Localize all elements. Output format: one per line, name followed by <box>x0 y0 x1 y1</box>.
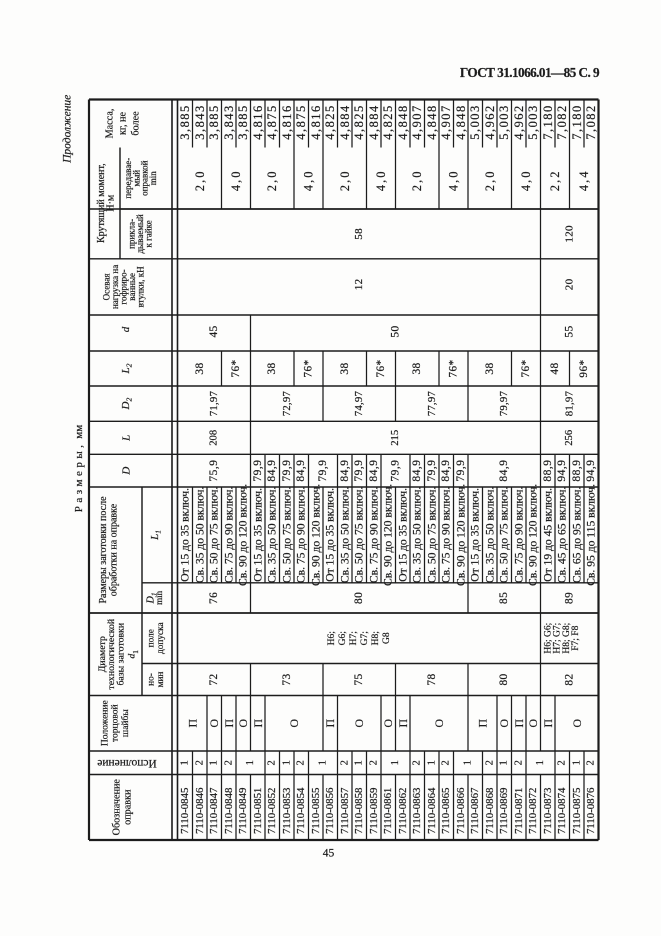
svg-text:Св. 75 до 90 включ.: Св. 75 до 90 включ. <box>440 487 453 584</box>
svg-text:О: О <box>381 718 395 727</box>
svg-text:Св. 35 до 50 включ.: Св. 35 до 50 включ. <box>483 487 496 584</box>
svg-text:5,003: 5,003 <box>497 104 511 139</box>
svg-text:120: 120 <box>564 225 576 243</box>
svg-text:min: min <box>154 590 164 605</box>
svg-text:Св. 75 до 90 включ.: Св. 75 до 90 включ. <box>295 487 308 584</box>
svg-text:Н8;: Н8; <box>371 631 381 645</box>
svg-text:шайбы: шайбы <box>120 709 131 737</box>
svg-text:50: 50 <box>390 325 402 337</box>
svg-text:1: 1 <box>390 760 401 765</box>
svg-text:поле: поле <box>147 629 157 647</box>
svg-text:80: 80 <box>353 592 365 604</box>
svg-text:7110-0867: 7110-0867 <box>469 787 481 834</box>
svg-text:D: D <box>121 467 133 476</box>
svg-text:84,9: 84,9 <box>295 460 307 482</box>
svg-text:1: 1 <box>463 760 474 765</box>
svg-text:89: 89 <box>564 592 576 604</box>
svg-text:1: 1 <box>535 760 546 765</box>
svg-text:78: 78 <box>426 673 438 685</box>
svg-text:Св. 50 до 75 включ.: Св. 50 до 75 включ. <box>498 487 511 584</box>
svg-text:1: 1 <box>499 760 510 765</box>
svg-text:7110-0863: 7110-0863 <box>411 788 423 834</box>
svg-text:7110-0862: 7110-0862 <box>397 788 409 834</box>
svg-text:4,825: 4,825 <box>381 104 395 139</box>
svg-text:Св. 90 до 120 включ.: Св. 90 до 120 включ. <box>527 484 540 586</box>
svg-text:7110-0873: 7110-0873 <box>542 788 554 834</box>
svg-text:Св. 75 до 90 включ.: Св. 75 до 90 включ. <box>222 487 235 584</box>
svg-text:74,97: 74,97 <box>353 391 365 417</box>
svg-text:Положение: Положение <box>101 700 111 746</box>
svg-text:От 15 до 35 включ.: От 15 до 35 включ. <box>179 488 192 582</box>
svg-text:7110-0856: 7110-0856 <box>324 787 336 834</box>
svg-text:2: 2 <box>339 760 350 765</box>
svg-text:4,0: 4,0 <box>447 169 461 191</box>
svg-text:П: П <box>251 718 265 727</box>
svg-text:G8: G8 <box>382 632 392 644</box>
svg-text:О: О <box>526 718 540 727</box>
svg-text:4,0: 4,0 <box>519 169 533 191</box>
svg-text:7110-0851: 7110-0851 <box>252 788 264 834</box>
svg-text:2: 2 <box>223 760 234 765</box>
svg-text:1: 1 <box>209 760 220 765</box>
svg-text:4,848: 4,848 <box>454 104 468 139</box>
svg-text:96*: 96* <box>578 359 590 377</box>
svg-text:80: 80 <box>498 673 510 685</box>
svg-text:7,082: 7,082 <box>555 104 569 139</box>
svg-text:4,884: 4,884 <box>338 104 352 139</box>
svg-text:4,825: 4,825 <box>323 104 337 139</box>
svg-text:1: 1 <box>281 760 292 765</box>
svg-text:2: 2 <box>513 760 524 765</box>
svg-text:7110-0854: 7110-0854 <box>295 787 307 834</box>
svg-text:Св. 90 до 120 включ.: Св. 90 до 120 включ. <box>237 484 250 586</box>
svg-text:76*: 76* <box>448 359 460 377</box>
svg-text:мин: мин <box>156 672 166 688</box>
svg-text:Размеры заготовки после: Размеры заготовки после <box>98 496 109 604</box>
svg-text:5,003: 5,003 <box>526 104 540 139</box>
svg-text:2,2: 2,2 <box>548 169 562 191</box>
svg-text:7,180: 7,180 <box>570 104 584 139</box>
svg-text:7110-0859: 7110-0859 <box>368 788 380 834</box>
svg-text:7110-0874: 7110-0874 <box>556 787 568 834</box>
svg-text:О: О <box>207 718 221 727</box>
svg-text:7110-0871: 7110-0871 <box>513 788 525 834</box>
svg-text:1: 1 <box>571 760 582 765</box>
svg-text:45: 45 <box>208 325 220 337</box>
svg-text:Св. 75 до 90 включ.: Св. 75 до 90 включ. <box>367 487 380 584</box>
svg-text:П: П <box>222 718 236 727</box>
svg-text:L: L <box>121 435 133 442</box>
svg-text:Св. 75 до 90 включ.: Св. 75 до 90 включ. <box>512 487 525 584</box>
svg-text:Св. 35 до 50 включ.: Св. 35 до 50 включ. <box>338 487 351 584</box>
svg-text:76*: 76* <box>375 359 387 377</box>
svg-text:38: 38 <box>411 362 423 374</box>
svg-text:От 19 до 45 включ.: От 19 до 45 включ. <box>541 488 554 582</box>
svg-text:Исполнение: Исполнение <box>97 757 157 769</box>
svg-text:7110-0855: 7110-0855 <box>310 788 322 834</box>
svg-text:2: 2 <box>557 760 568 765</box>
svg-text:П: П <box>512 718 526 727</box>
svg-text:7110-0858: 7110-0858 <box>353 788 365 834</box>
svg-text:7110-0848: 7110-0848 <box>223 788 235 834</box>
svg-text:1: 1 <box>180 760 191 765</box>
svg-text:79,97: 79,97 <box>498 391 510 417</box>
svg-text:обработки на оправке: обработки на оправке <box>109 503 120 596</box>
svg-text:1: 1 <box>245 760 256 765</box>
svg-text:втулки, кН: втулки, кН <box>136 266 146 307</box>
svg-text:79,9: 79,9 <box>426 460 438 482</box>
svg-text:4,907: 4,907 <box>410 104 424 139</box>
svg-text:2: 2 <box>412 760 423 765</box>
svg-text:ГОСТ 31.1066.01—85 С. 9: ГОСТ 31.1066.01—85 С. 9 <box>460 65 600 80</box>
svg-text:4,816: 4,816 <box>309 104 323 139</box>
svg-text:7,082: 7,082 <box>584 104 598 139</box>
svg-text:79,9: 79,9 <box>455 460 467 482</box>
svg-text:2,0: 2,0 <box>338 169 352 191</box>
svg-text:45: 45 <box>323 848 335 860</box>
svg-text:4,848: 4,848 <box>425 104 439 139</box>
svg-text:48: 48 <box>549 362 561 374</box>
svg-text:2,0: 2,0 <box>483 169 497 191</box>
svg-text:7110-0845: 7110-0845 <box>179 788 191 834</box>
svg-text:но-: но- <box>147 673 157 686</box>
svg-text:П: П <box>541 718 555 727</box>
svg-text:5,003: 5,003 <box>468 104 482 139</box>
svg-text:4,0: 4,0 <box>374 169 388 191</box>
svg-text:4,962: 4,962 <box>512 104 526 139</box>
svg-text:4,4: 4,4 <box>577 169 591 191</box>
svg-text:Св. 35 до 50 включ.: Св. 35 до 50 включ. <box>266 487 279 584</box>
svg-text:Н·м: Н·м <box>106 194 117 212</box>
svg-text:76: 76 <box>208 592 220 604</box>
svg-text:Св. 90 до 120 включ.: Св. 90 до 120 включ. <box>309 484 322 586</box>
svg-text:12: 12 <box>353 279 365 291</box>
svg-text:7,180: 7,180 <box>541 104 555 139</box>
svg-text:84,9: 84,9 <box>339 460 351 482</box>
svg-text:55: 55 <box>564 325 576 337</box>
svg-text:85: 85 <box>498 592 510 604</box>
svg-text:84,9: 84,9 <box>368 460 380 482</box>
svg-text:4,825: 4,825 <box>352 104 366 139</box>
svg-text:Св. 95 до 115 включ.: Св. 95 до 115 включ. <box>585 484 598 586</box>
svg-text:торцовой: торцовой <box>109 704 120 742</box>
svg-text:58: 58 <box>353 228 365 240</box>
svg-text:2,0: 2,0 <box>410 169 424 191</box>
svg-text:81,97: 81,97 <box>564 391 576 417</box>
svg-text:d: d <box>120 326 132 332</box>
svg-text:более: более <box>131 111 142 136</box>
svg-text:4,875: 4,875 <box>265 104 279 139</box>
svg-text:Обозначение: Обозначение <box>112 779 123 836</box>
svg-text:73: 73 <box>281 673 293 685</box>
svg-text:Св. 90 до 120 включ.: Св. 90 до 120 включ. <box>382 484 395 586</box>
svg-text:7110-0846: 7110-0846 <box>194 787 206 834</box>
svg-text:208: 208 <box>209 430 220 446</box>
svg-text:П: П <box>186 718 200 727</box>
svg-text:77,97: 77,97 <box>426 391 438 417</box>
svg-text:Св. 65 до 95 включ.: Св. 65 до 95 включ. <box>570 487 583 584</box>
svg-text:1: 1 <box>426 760 437 765</box>
svg-text:88,9: 88,9 <box>571 460 583 482</box>
svg-text:38: 38 <box>266 362 278 374</box>
svg-text:3,843: 3,843 <box>193 104 207 139</box>
svg-text:94,9: 94,9 <box>556 460 568 482</box>
svg-text:Масса,: Масса, <box>105 109 116 139</box>
svg-text:256: 256 <box>564 430 575 446</box>
svg-text:О: О <box>570 718 584 727</box>
svg-text:2: 2 <box>194 760 205 765</box>
svg-text:2: 2 <box>586 760 597 765</box>
svg-text:От 15 до 35 включ.: От 15 до 35 включ. <box>469 488 482 582</box>
svg-text:4,884: 4,884 <box>367 104 381 139</box>
svg-text:79,9: 79,9 <box>317 460 329 482</box>
svg-text:G7;: G7; <box>360 631 370 645</box>
svg-text:Размеры, мм: Размеры, мм <box>73 425 85 512</box>
svg-text:Св. 50 до 75 включ.: Св. 50 до 75 включ. <box>280 487 293 584</box>
svg-text:4,0: 4,0 <box>229 169 243 191</box>
svg-text:7110-0868: 7110-0868 <box>484 788 496 834</box>
svg-text:G6;: G6; <box>338 631 348 645</box>
svg-text:79,9: 79,9 <box>390 460 402 482</box>
svg-text:7110-0869: 7110-0869 <box>498 788 510 834</box>
svg-text:7110-0857: 7110-0857 <box>339 787 351 834</box>
svg-text:4,848: 4,848 <box>396 104 410 139</box>
svg-text:П: П <box>323 718 337 727</box>
svg-text:76*: 76* <box>520 359 532 377</box>
svg-text:79,9: 79,9 <box>353 460 365 482</box>
svg-text:38: 38 <box>194 362 206 374</box>
svg-text:1: 1 <box>318 760 329 765</box>
svg-text:7110-0866: 7110-0866 <box>455 787 467 834</box>
svg-text:Св. 35 до 50 включ.: Св. 35 до 50 включ. <box>193 487 206 584</box>
svg-text:F7; F8: F7; F8 <box>571 625 581 650</box>
svg-text:94,9: 94,9 <box>585 460 597 482</box>
svg-text:2: 2 <box>296 760 307 765</box>
svg-text:4,875: 4,875 <box>294 104 308 139</box>
svg-text:84,9: 84,9 <box>440 460 452 482</box>
svg-text:Св. 50 до 75 включ.: Св. 50 до 75 включ. <box>353 487 366 584</box>
svg-text:7110-0847: 7110-0847 <box>208 787 220 834</box>
svg-text:О: О <box>352 718 366 727</box>
svg-text:79,9: 79,9 <box>281 460 293 482</box>
svg-text:20: 20 <box>564 278 576 290</box>
svg-text:7110-0861: 7110-0861 <box>382 788 394 834</box>
svg-text:7110-0864: 7110-0864 <box>426 787 438 834</box>
svg-text:базы заготовки: базы заготовки <box>116 622 127 685</box>
svg-text:4,816: 4,816 <box>280 104 294 139</box>
svg-text:2: 2 <box>441 760 452 765</box>
svg-text:7110-0849: 7110-0849 <box>237 788 249 834</box>
svg-text:3,843: 3,843 <box>222 104 236 139</box>
svg-text:Св. 50 до 75 включ.: Св. 50 до 75 включ. <box>208 487 221 584</box>
svg-text:84,9: 84,9 <box>498 460 510 482</box>
svg-text:7110-0872: 7110-0872 <box>527 788 539 834</box>
svg-text:кг, не: кг, не <box>118 112 129 136</box>
svg-text:7110-0865: 7110-0865 <box>440 788 452 834</box>
svg-text:Продолжение: Продолжение <box>62 95 74 164</box>
svg-text:О: О <box>497 718 511 727</box>
svg-text:75: 75 <box>353 673 365 685</box>
svg-text:76*: 76* <box>230 359 242 377</box>
svg-text:84,9: 84,9 <box>266 460 278 482</box>
svg-text:75,9: 75,9 <box>208 460 220 482</box>
svg-text:Св. 35 до 50 включ.: Св. 35 до 50 включ. <box>411 487 424 584</box>
svg-text:215: 215 <box>390 430 401 446</box>
svg-text:3,885: 3,885 <box>207 104 221 139</box>
svg-text:4,816: 4,816 <box>251 104 265 139</box>
svg-text:Св. 45 до 65 включ.: Св. 45 до 65 включ. <box>556 487 569 584</box>
svg-text:71,97: 71,97 <box>208 391 220 417</box>
svg-text:О: О <box>287 718 301 727</box>
svg-text:Н7;: Н7; <box>349 631 359 645</box>
svg-text:76*: 76* <box>303 359 315 377</box>
svg-text:7110-0853: 7110-0853 <box>281 788 293 834</box>
svg-text:к гайке: к гайке <box>144 220 154 247</box>
svg-text:84,9: 84,9 <box>411 460 423 482</box>
svg-text:2: 2 <box>368 760 379 765</box>
svg-text:2,0: 2,0 <box>193 169 207 191</box>
svg-text:Св. 50 до 75 включ.: Св. 50 до 75 включ. <box>425 487 438 584</box>
svg-text:7110-0875: 7110-0875 <box>571 788 583 834</box>
svg-text:88,9: 88,9 <box>542 460 554 482</box>
svg-text:1: 1 <box>354 760 365 765</box>
svg-text:4,0: 4,0 <box>302 169 316 191</box>
svg-text:82: 82 <box>564 673 576 685</box>
svg-text:От 15 до 35 включ.: От 15 до 35 включ. <box>396 488 409 582</box>
svg-text:О: О <box>432 718 446 727</box>
svg-text:2: 2 <box>267 760 278 765</box>
svg-text:7110-0876: 7110-0876 <box>585 787 597 834</box>
svg-text:От 15 до 35 включ.: От 15 до 35 включ. <box>324 488 337 582</box>
svg-text:72,97: 72,97 <box>281 391 293 417</box>
svg-text:4,907: 4,907 <box>439 104 453 139</box>
svg-text:2: 2 <box>484 760 495 765</box>
svg-text:допуска: допуска <box>156 622 166 654</box>
svg-text:Св. 90 до 120 включ.: Св. 90 до 120 включ. <box>454 484 467 586</box>
svg-text:Н6;: Н6; <box>327 631 337 645</box>
svg-text:оправки: оправки <box>123 789 134 825</box>
svg-text:2,0: 2,0 <box>265 169 279 191</box>
svg-text:min: min <box>148 171 158 186</box>
svg-text:7110-0852: 7110-0852 <box>266 788 278 834</box>
svg-text:П: П <box>476 718 490 727</box>
svg-text:3,885: 3,885 <box>236 104 250 139</box>
svg-text:38: 38 <box>339 362 351 374</box>
svg-text:П: П <box>396 718 410 727</box>
svg-text:О: О <box>236 718 250 727</box>
svg-text:79,9: 79,9 <box>252 460 264 482</box>
svg-text:72: 72 <box>208 673 220 685</box>
svg-text:4,962: 4,962 <box>483 104 497 139</box>
svg-text:3,885: 3,885 <box>178 104 192 139</box>
svg-text:38: 38 <box>484 362 496 374</box>
svg-text:От 15 до 35 включ.: От 15 до 35 включ. <box>251 488 264 582</box>
